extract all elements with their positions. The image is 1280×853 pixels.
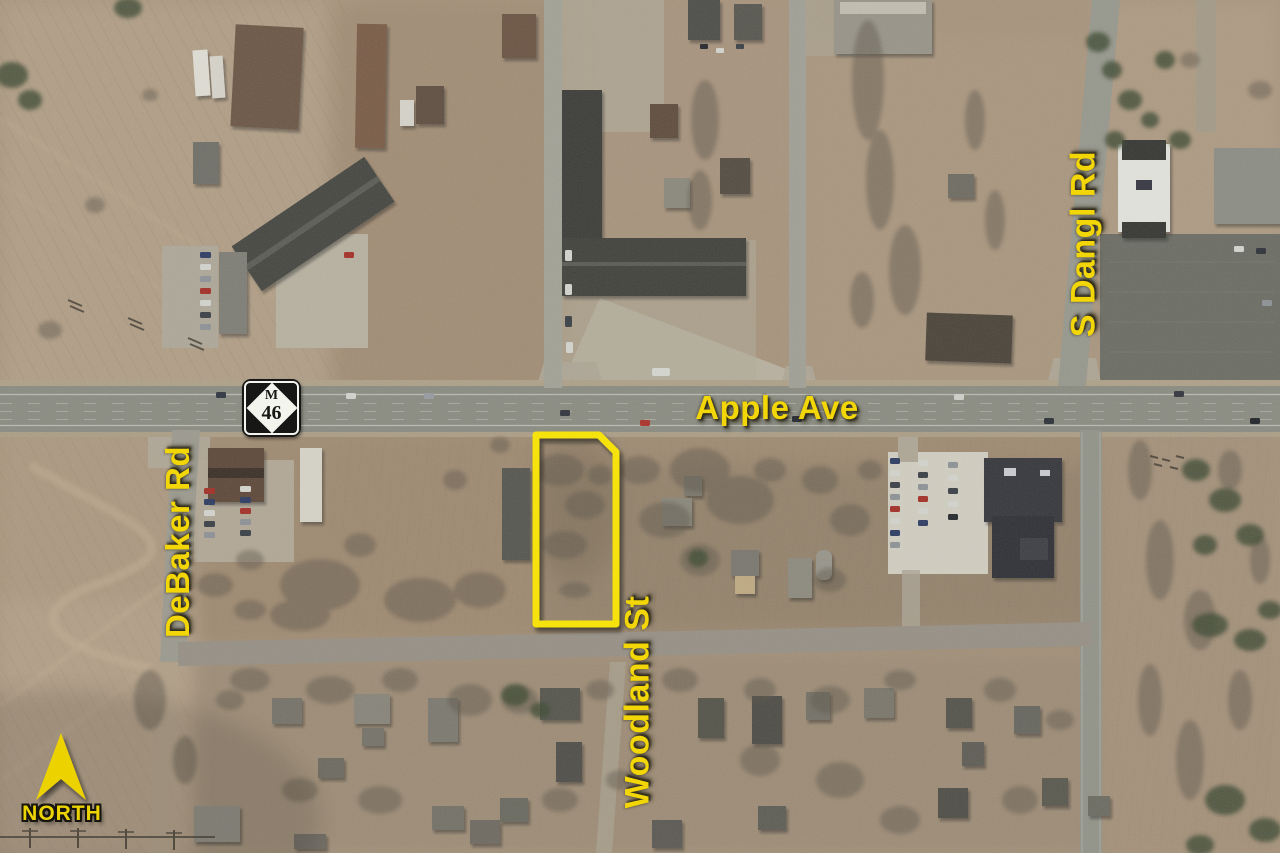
- m46-route-shield: M 46: [242, 379, 301, 437]
- route-shield-number: 46: [246, 403, 297, 423]
- route-shield-letter: M: [246, 389, 297, 403]
- aerial-map: Apple Ave DeBaker Rd S Dangl Rd Woodland…: [0, 0, 1280, 853]
- road-label-s-dangl-rd: S Dangl Rd: [1065, 151, 1104, 337]
- road-label-debaker-rd: DeBaker Rd: [159, 446, 197, 638]
- route-shield-ring: M 46: [244, 381, 299, 435]
- road-label-apple-ave: Apple Ave: [695, 389, 858, 427]
- north-label: NORTH: [22, 802, 102, 826]
- road-label-woodland-st: Woodland St: [619, 596, 658, 809]
